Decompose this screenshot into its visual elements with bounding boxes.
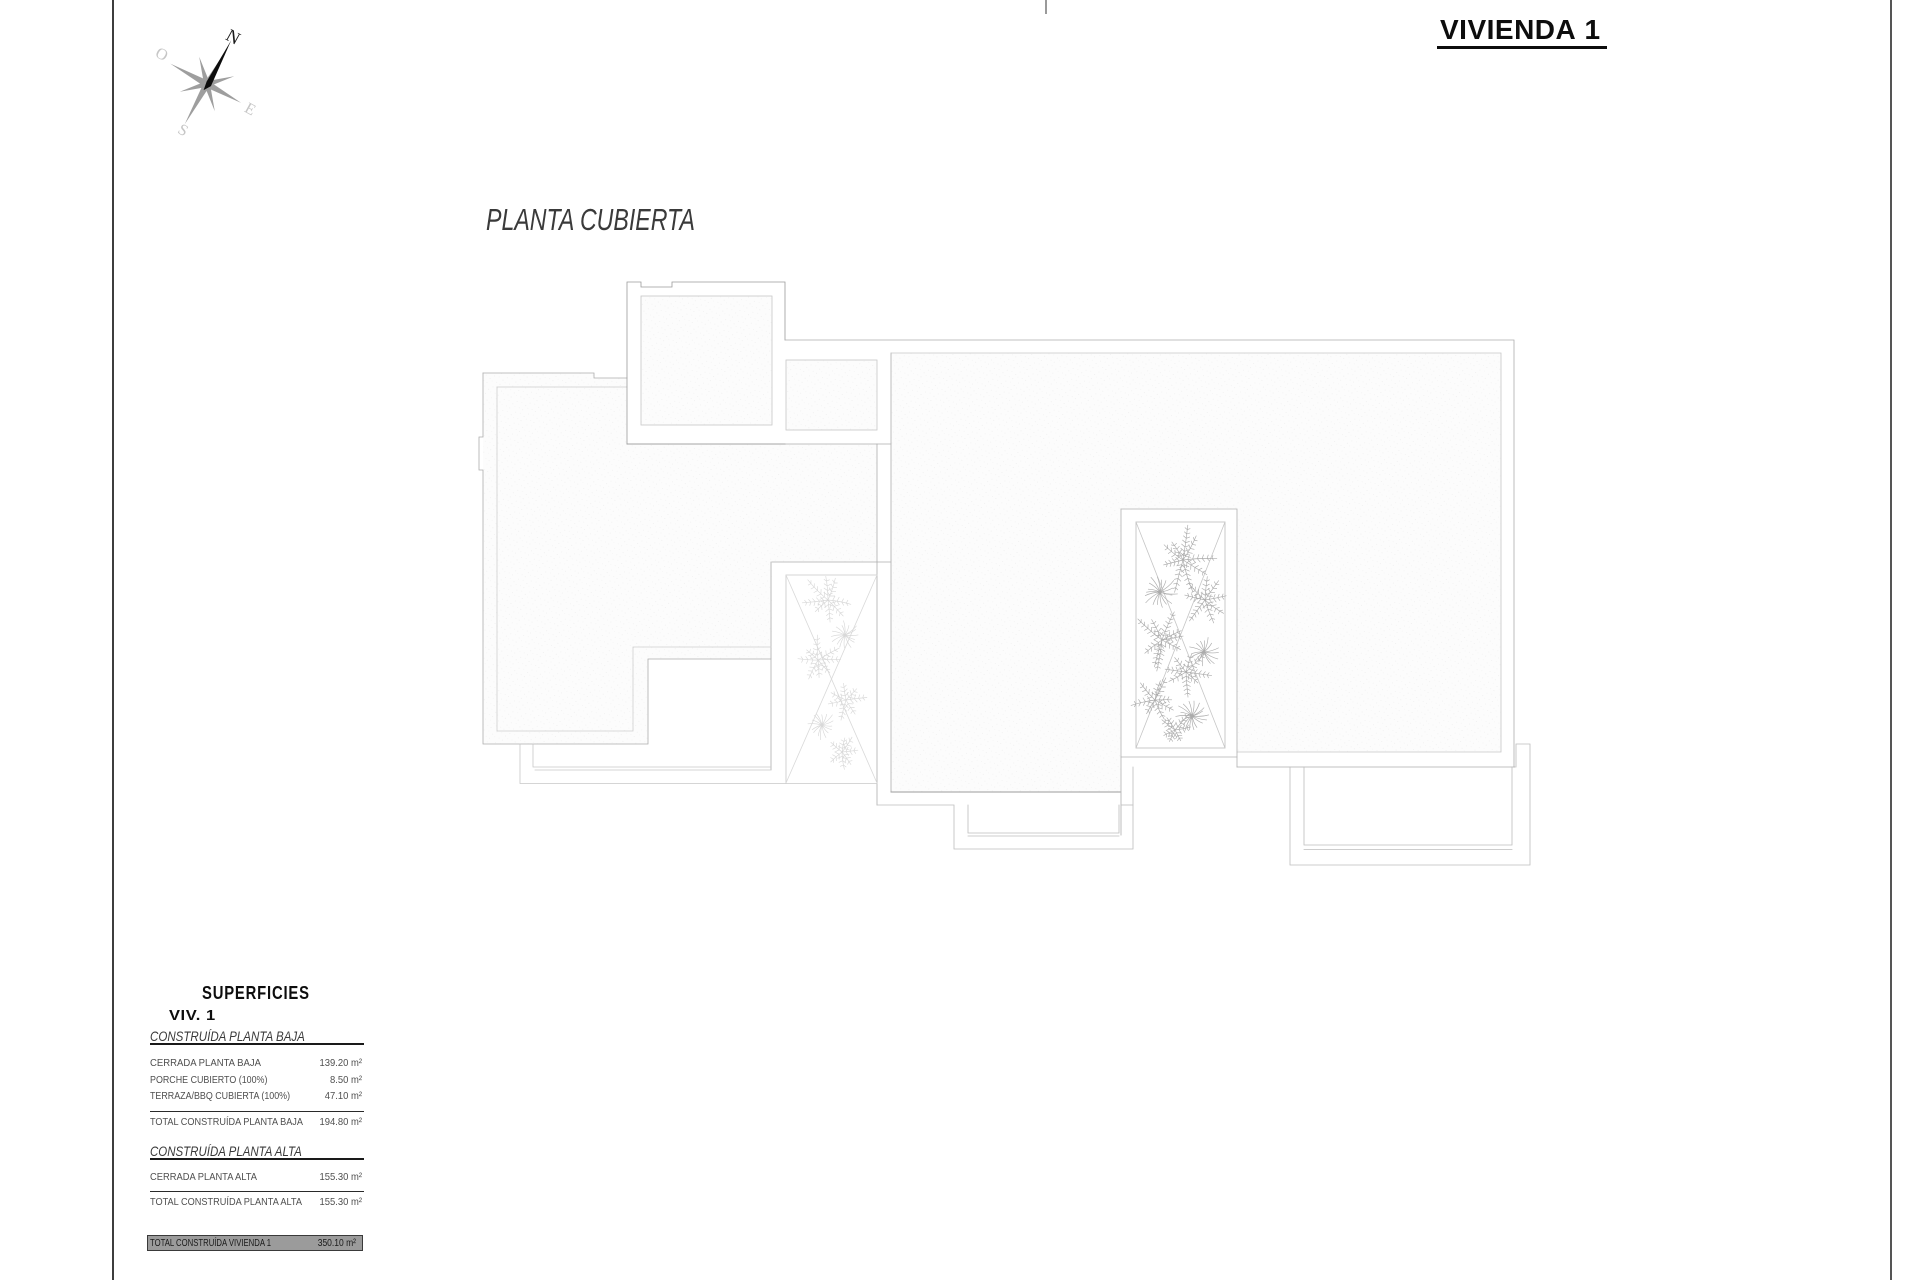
svg-text:E: E	[242, 100, 259, 120]
svg-text:N: N	[223, 25, 244, 49]
svg-text:S: S	[175, 121, 191, 140]
svg-text:O: O	[152, 45, 170, 65]
